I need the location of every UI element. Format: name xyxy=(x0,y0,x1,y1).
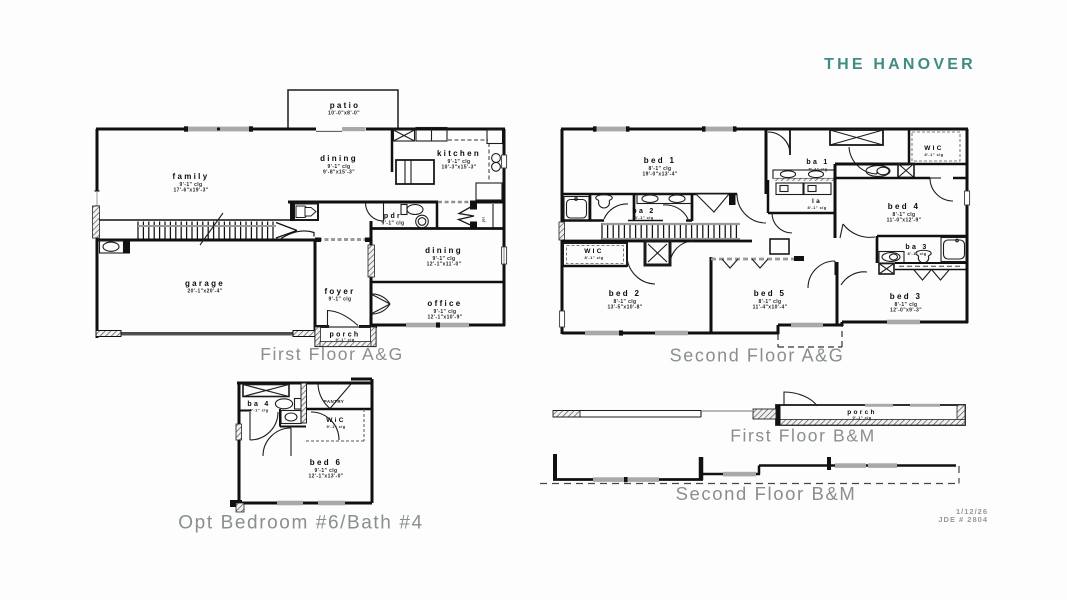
svg-text:First Floor A&G: First Floor A&G xyxy=(260,344,404,364)
svg-text:Second Floor A&G: Second Floor A&G xyxy=(670,346,845,366)
svg-text:8'-1" clg: 8'-1" clg xyxy=(634,215,653,220)
svg-text:ref: ref xyxy=(481,217,486,223)
svg-text:patio: patio xyxy=(330,101,361,110)
svg-text:12'-0"x9'-3": 12'-0"x9'-3" xyxy=(890,308,922,314)
svg-text:11'-4"x10'-4": 11'-4"x10'-4" xyxy=(753,305,788,311)
svg-text:bed 2: bed 2 xyxy=(609,289,641,298)
svg-text:bed 1: bed 1 xyxy=(644,156,676,165)
svg-text:9'-1" clg: 9'-1" clg xyxy=(329,297,352,303)
svg-text:dining: dining xyxy=(320,154,358,163)
svg-text:10'-3"x15'-3": 10'-3"x15'-3" xyxy=(441,165,476,171)
svg-text:WIC: WIC xyxy=(584,248,604,255)
svg-text:office: office xyxy=(427,299,462,308)
svg-text:bed 6: bed 6 xyxy=(310,458,342,467)
svg-text:9'-1" clg: 9'-1" clg xyxy=(852,415,871,420)
svg-text:WIC: WIC xyxy=(924,145,944,152)
svg-text:pdr: pdr xyxy=(384,213,402,220)
svg-text:bed 3: bed 3 xyxy=(890,292,922,301)
svg-text:Opt Bedroom #6/Bath #4: Opt Bedroom #6/Bath #4 xyxy=(178,513,423,534)
svg-text:20'-1"x20'-4": 20'-1"x20'-4" xyxy=(187,289,222,295)
svg-text:12'-1"x10'-9": 12'-1"x10'-9" xyxy=(427,315,462,321)
svg-text:12'-1"x11'-0": 12'-1"x11'-0" xyxy=(427,262,462,268)
svg-text:bed 4: bed 4 xyxy=(888,202,920,211)
svg-text:ba 1: ba 1 xyxy=(806,159,829,166)
svg-text:9'-8"x15'-3": 9'-8"x15'-3" xyxy=(323,170,355,176)
svg-text:13'-5"x10'-8": 13'-5"x10'-8" xyxy=(607,305,642,311)
svg-text:foyer: foyer xyxy=(324,287,355,296)
svg-text:Second Floor B&M: Second Floor B&M xyxy=(676,483,857,504)
svg-text:8'-1" clg: 8'-1" clg xyxy=(584,255,603,260)
svg-text:8'-1" clg: 8'-1" clg xyxy=(924,152,943,157)
svg-text:bed 5: bed 5 xyxy=(754,289,786,298)
svg-text:family: family xyxy=(173,172,210,181)
svg-text:dining: dining xyxy=(425,246,463,255)
svg-text:garage: garage xyxy=(185,279,225,288)
svg-text:11'-0"x12'-9": 11'-0"x12'-9" xyxy=(887,218,922,224)
svg-text:la: la xyxy=(812,198,822,205)
svg-text:9'-1" clg: 9'-1" clg xyxy=(249,408,268,413)
svg-text:17'-6"x19'-3": 17'-6"x19'-3" xyxy=(173,188,208,194)
svg-text:8'-1" clg: 8'-1" clg xyxy=(807,205,826,210)
svg-text:kitchen: kitchen xyxy=(437,149,481,158)
svg-text:9'-1" clg: 9'-1" clg xyxy=(382,221,405,227)
svg-text:JDE # 2804: JDE # 2804 xyxy=(938,515,988,524)
svg-text:9'-1" clg: 9'-1" clg xyxy=(335,337,354,342)
svg-text:THE HANOVER: THE HANOVER xyxy=(824,56,976,73)
svg-text:First Floor B&M: First Floor B&M xyxy=(730,426,876,446)
svg-text:12'-1"x13'-0": 12'-1"x13'-0" xyxy=(308,474,343,480)
svg-text:10'-0"x8'-0": 10'-0"x8'-0" xyxy=(328,111,360,117)
svg-text:ba 2: ba 2 xyxy=(632,208,655,215)
svg-text:19'-0"x13'-4": 19'-0"x13'-4" xyxy=(642,172,677,178)
